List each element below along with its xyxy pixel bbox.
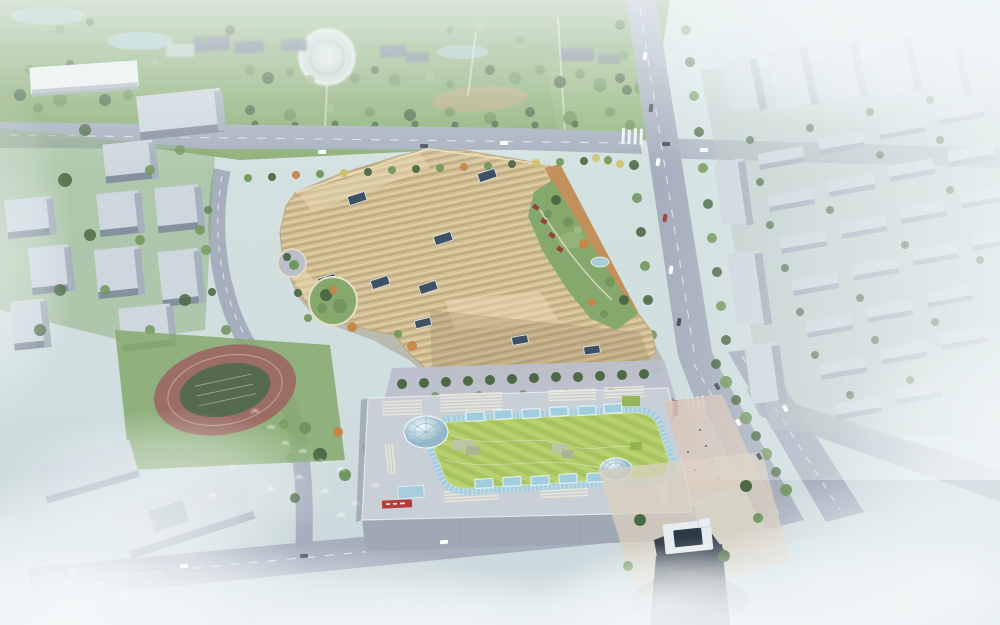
rendering-canvas <box>0 0 1000 625</box>
aerial-rendering <box>0 0 1000 625</box>
